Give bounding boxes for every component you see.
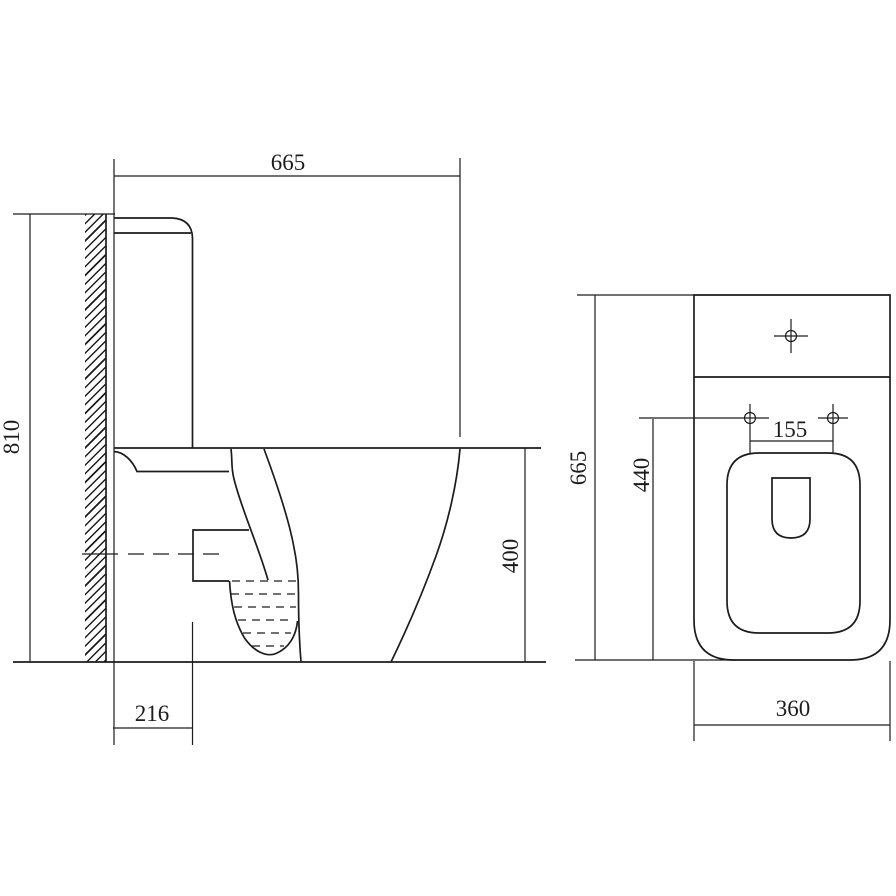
dim-label-hole-spacing: 155 — [773, 417, 808, 442]
plan-bowl-opening — [772, 478, 810, 538]
dim-label-bowl-height: 400 — [498, 539, 523, 574]
dim-label-outlet-setout: 216 — [135, 701, 170, 726]
dim-label-overall-depth: 665 — [271, 150, 306, 175]
plan-seat-outline — [727, 453, 860, 633]
trapway-left-wall — [231, 449, 268, 580]
fixing-hole-right-crosshair — [818, 404, 848, 453]
plan-view: 155 665 440 360 — [566, 295, 890, 741]
technical-drawing-canvas: 810 665 — [0, 0, 896, 896]
fixing-hole-left-crosshair — [745, 404, 756, 453]
water-level-dashes — [231, 581, 296, 646]
dim-label-overall-height: 810 — [0, 420, 24, 455]
outlet-box — [193, 530, 249, 581]
dim-label-overall-length: 665 — [566, 451, 591, 486]
dim-label-bowl-length: 440 — [629, 458, 654, 493]
flush-button-crosshair — [774, 319, 808, 353]
side-elevation-view: 810 665 — [0, 150, 546, 745]
rim-underside-profile — [114, 452, 229, 472]
dim-label-overall-width: 360 — [776, 696, 811, 721]
bowl-front-curve — [391, 449, 460, 662]
cistern-outline — [114, 218, 193, 448]
sump-curve — [230, 581, 298, 655]
toilet-technical-drawing: 810 665 — [0, 0, 896, 896]
